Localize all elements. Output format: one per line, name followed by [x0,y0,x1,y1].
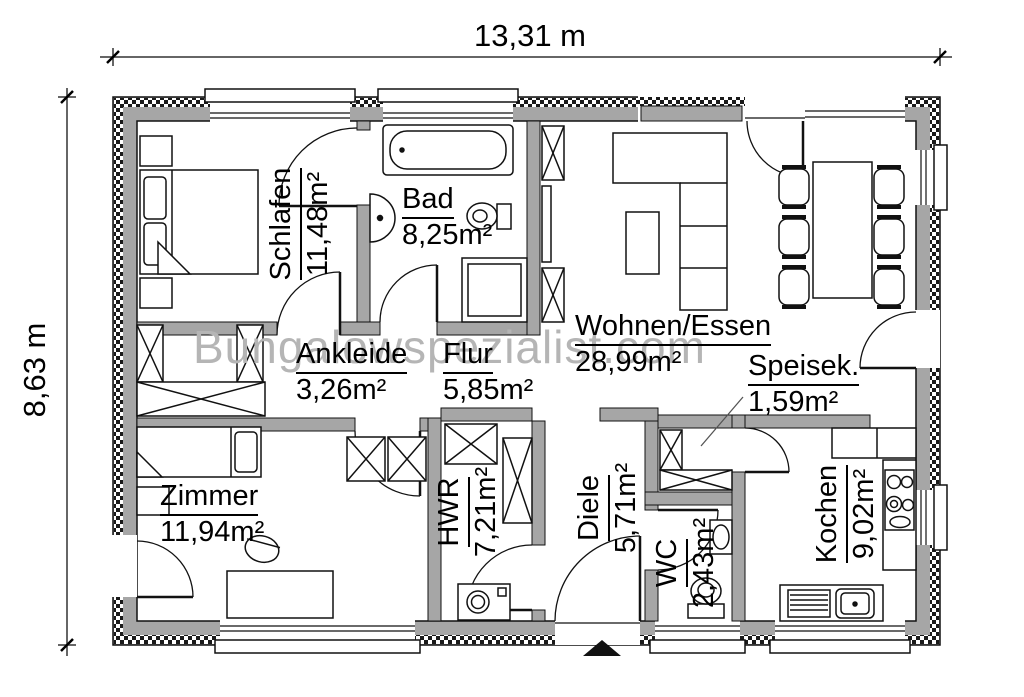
room-area: 8,25m² [402,219,492,252]
room-label-bad: Bad 8,25m² [402,183,492,252]
zimmer-wardrobe-icon [347,437,426,481]
bathtub-icon [383,125,513,175]
window-icon [205,89,355,122]
dimension-width-label: 13,31 m [450,18,610,54]
floorplan: Bungalowspezialist.com 13,31 m 8,63 m Sc… [0,0,1024,697]
door-swing [380,265,437,322]
room-label-hwr: HWR 7,21m² [432,437,504,587]
window-icon [770,619,910,653]
room-name: Zimmer [160,480,258,516]
room-label-wc: WC 2,43m² [654,507,718,619]
pantry-shelf-icon [660,430,732,490]
door-swing [745,428,789,472]
wardrobe-icon [137,325,265,416]
window-icon [378,89,518,122]
desk-icon [227,571,333,618]
room-area: 11,94m² [160,516,264,549]
room-label-diele: Diele 5,71m² [573,433,643,583]
room-area: 5,85m² [443,374,533,407]
room-label-speisek: Speisek. 1,59m² [748,350,859,419]
window-icon [215,619,420,653]
nightstand-icon [140,136,172,166]
washbasin-icon [370,194,395,242]
coffee-table-icon [626,212,659,274]
room-label-wohnen: Wohnen/Essen 28,99m² [575,310,771,379]
room-name: Speisek. [748,350,859,386]
room-area: 2,43m² [688,518,721,608]
room-name: Diele [573,475,609,541]
tall-cabinet-icon [542,126,564,322]
room-label-zimmer: Zimmer 11,94m² [160,480,264,549]
window-icon [914,145,947,210]
room-label-flur: Flur 5,85m² [443,338,533,407]
room-name: WC [651,539,687,587]
nightstand-icon [140,278,172,308]
side-door-icon [860,310,940,368]
room-area: 5,71m² [610,463,643,553]
room-label-ankleide: Ankleide 3,26m² [296,338,407,407]
dining-table-icon [813,162,872,298]
room-area: 1,59m² [748,386,838,419]
single-bed-icon [137,427,261,477]
room-name: Kochen [811,465,847,563]
window-icon [914,485,947,550]
room-area: 9,02m² [848,469,881,559]
dimension-depth-label: 8,63 m [17,305,53,435]
window-icon [638,96,745,122]
double-bed-icon [140,170,258,274]
room-area: 3,26m² [296,374,386,407]
window-icon [650,619,745,653]
room-area: 28,99m² [575,346,681,379]
room-name: Bad [402,183,454,219]
room-name: Ankleide [296,338,407,374]
washing-machine-icon [458,584,510,620]
room-label-schlafen: Schlafen 11,48m² [254,129,346,319]
room-area: 11,48m² [302,172,335,276]
terrace-door-icon [745,96,805,177]
room-area: 7,21m² [470,467,503,557]
room-name: HWR [433,477,469,546]
room-name: Flur [443,338,493,374]
stove-icon [885,470,914,530]
room-label-kochen: Kochen 9,02m² [809,434,883,594]
room-name: Schlafen [265,168,301,281]
room-name: Wohnen/Essen [575,310,771,346]
shower-icon [462,258,527,322]
window-icon [805,96,905,122]
